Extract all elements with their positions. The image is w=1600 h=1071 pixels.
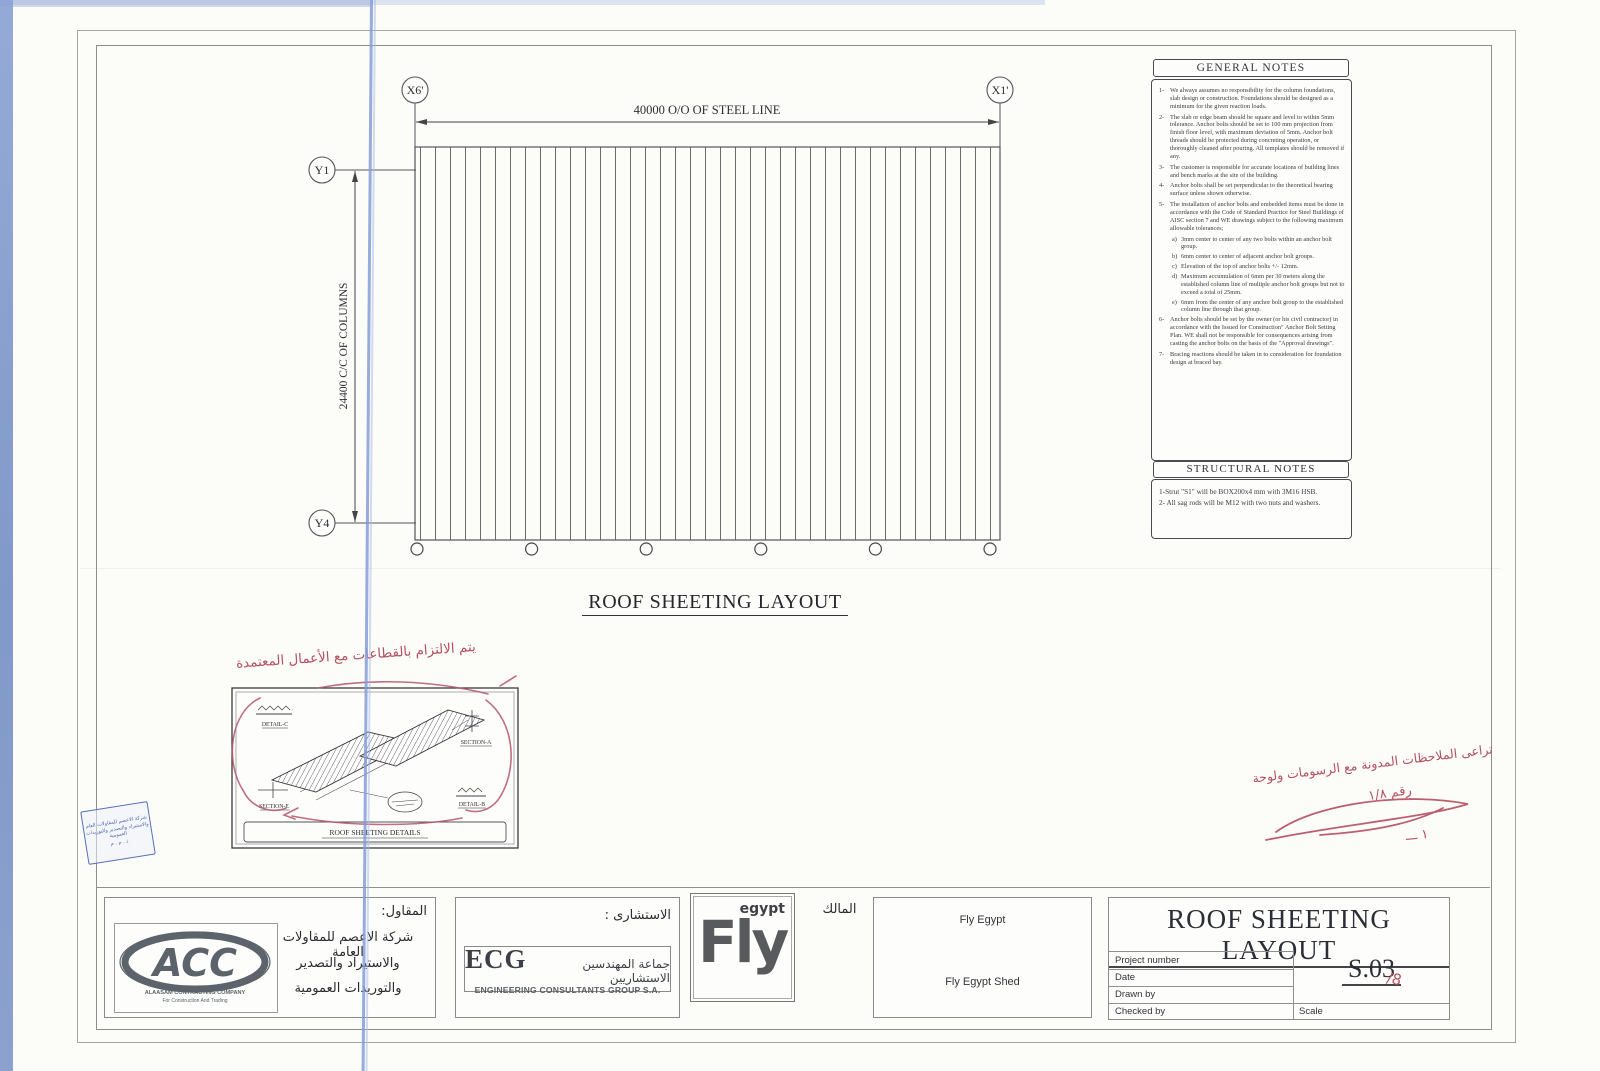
main-title-wrap: ROOF SHEETING LAYOUT [540,591,890,616]
svg-text:Y4: Y4 [315,516,330,530]
contractor-panel: المقاول: شركة الاعصم للمقاولات العامة وا… [104,897,436,1018]
svg-text:ACC: ACC [150,941,237,985]
acc-logo: ACC ALAASAM CONTRACTING COMPANY For Cons… [115,924,275,1010]
ecg-logo-arabic: جماعة المهندسين الاستشاريين [531,957,670,985]
svg-text:DETAIL-B: DETAIL-B [459,802,485,808]
company-stamp: شركة الاعصم للمقاولات العام والاستيراد و… [80,801,156,865]
structural-notes-body: 1-Strut "S1" will be BOX200x4 mm with 3M… [1151,479,1352,539]
svg-text:X6': X6' [407,83,424,97]
field-row-line [1109,1003,1449,1004]
svg-text:SECTION-A: SECTION-A [461,740,492,746]
subnote-item: c)Elevation of the top of anchor bolts +… [1172,263,1345,271]
svg-text:X1': X1' [992,83,1009,97]
field-row-line [1109,986,1293,987]
contractor-name-line: والاستيراد والتصدير [269,956,427,971]
svg-text:ROOF SHEETING DETAILS: ROOF SHEETING DETAILS [329,828,420,837]
field-scale: Scale [1299,1006,1323,1017]
general-notes-title: GENERAL NOTES [1197,62,1306,74]
ecg-logo-text: ECG [465,944,527,975]
owner-name: Fly Egypt [874,914,1091,926]
structural-note-item: 1-Strut "S1" will be BOX200x4 mm with 3M… [1159,487,1345,498]
acc-logo-box: ACC ALAASAM CONTRACTING COMPANY For Cons… [114,923,278,1013]
column-circles [411,543,996,555]
dim-horizontal: 40000 O/O OF STEEL LINE [416,103,999,125]
svg-text:DETAIL-C: DETAIL-C [262,722,288,728]
general-notes-header: GENERAL NOTES [1153,59,1349,77]
main-title: ROOF SHEETING LAYOUT [582,591,847,616]
field-row-line [1109,969,1293,970]
structural-notes-header: STRUCTURAL NOTES [1153,461,1349,478]
note-item: 6-Anchor bolts should be set by the owne… [1159,316,1345,347]
sheet-number-red-mark: /8 [1385,969,1404,990]
subnote-item: b)6mm center to center of adjacent ancho… [1172,253,1345,261]
structural-notes-title: STRUCTURAL NOTES [1186,463,1315,475]
contractor-name-line: والتوريدات العمومية [269,981,427,996]
sheet-number-wrap: S.03 [1294,954,1449,986]
svg-text:24400 C/C OF COLUMNS: 24400 C/C OF COLUMNS [338,283,350,410]
project-name: Fly Egypt Shed [874,976,1091,988]
note-item: 2-The slab or edge beam should be square… [1159,114,1345,161]
note-item: 5-The installation of anchor bolts and e… [1159,201,1345,232]
note-item: 1-We always assumes no responsibility fo… [1159,87,1345,111]
fly-logo-box: egypt Fly [690,893,795,1002]
contractor-label: المقاول: [381,904,427,919]
svg-text:Y1: Y1 [315,163,330,177]
ecg-logo-box: ECG جماعة المهندسين الاستشاريين ENGINEER… [464,946,671,992]
subnote-item: a)3mm center to center of any two bolts … [1172,236,1345,252]
roof-sheeting-panel [415,147,1000,540]
svg-text:For Construction And Trading: For Construction And Trading [162,998,227,1004]
drawing-sheet: X6' X1' Y1 Y4 40000 O/O OF STEEL LINE 24… [0,0,1600,1071]
subnote-item: d)Maximum accumulation of 6mm per 30 met… [1172,273,1345,297]
field-date: Date [1115,972,1135,983]
subnote-item: e)6mm from the center of any anchor bolt… [1172,299,1345,315]
consultant-label: الاستشارى : [605,908,671,923]
note5-sublist: a)3mm center to center of any two bolts … [1172,236,1345,315]
field-row-line [1109,951,1293,952]
sheet-title-panel: ROOF SHEETING LAYOUT Project number Date… [1108,897,1450,1020]
dim-vertical: 24400 C/C OF COLUMNS [338,171,358,522]
field-project-number: Project number [1115,955,1179,966]
note-item: 3-The customer is responsible for accura… [1159,164,1345,180]
fly-logo-text: Fly [698,908,786,976]
structural-note-item: 2- All sag rods will be M12 with two nut… [1159,498,1345,509]
ecg-logo-sub: ENGINEERING CONSULTANTS GROUP S.A. [475,985,661,995]
field-drawn-by: Drawn by [1115,989,1155,1000]
svg-text:ALAASAM CONTRACTING COMPANY: ALAASAM CONTRACTING COMPANY [145,990,246,996]
note-item: 7-Bracing reactions should be taken in t… [1159,351,1345,367]
grid-bubble-y1: Y1 [309,157,335,183]
grid-bubble-y4: Y4 [309,510,335,536]
svg-text:40000 O/O OF STEEL LINE: 40000 O/O OF STEEL LINE [634,103,781,117]
grid-bubble-x6: X6' [402,77,428,103]
grid-bubble-x1: X1' [987,77,1013,103]
owner-label: المالك [812,902,867,917]
owner-project-panel: Fly Egypt Fly Egypt Shed [873,897,1092,1018]
note-item: 4-Anchor bolts shall be set perpendicula… [1159,182,1345,198]
consultant-panel: الاستشارى : ECG جماعة المهندسين الاستشار… [455,897,680,1018]
general-notes-body: 1-We always assumes no responsibility fo… [1151,79,1352,461]
field-checked-by: Checked by [1115,1006,1165,1017]
